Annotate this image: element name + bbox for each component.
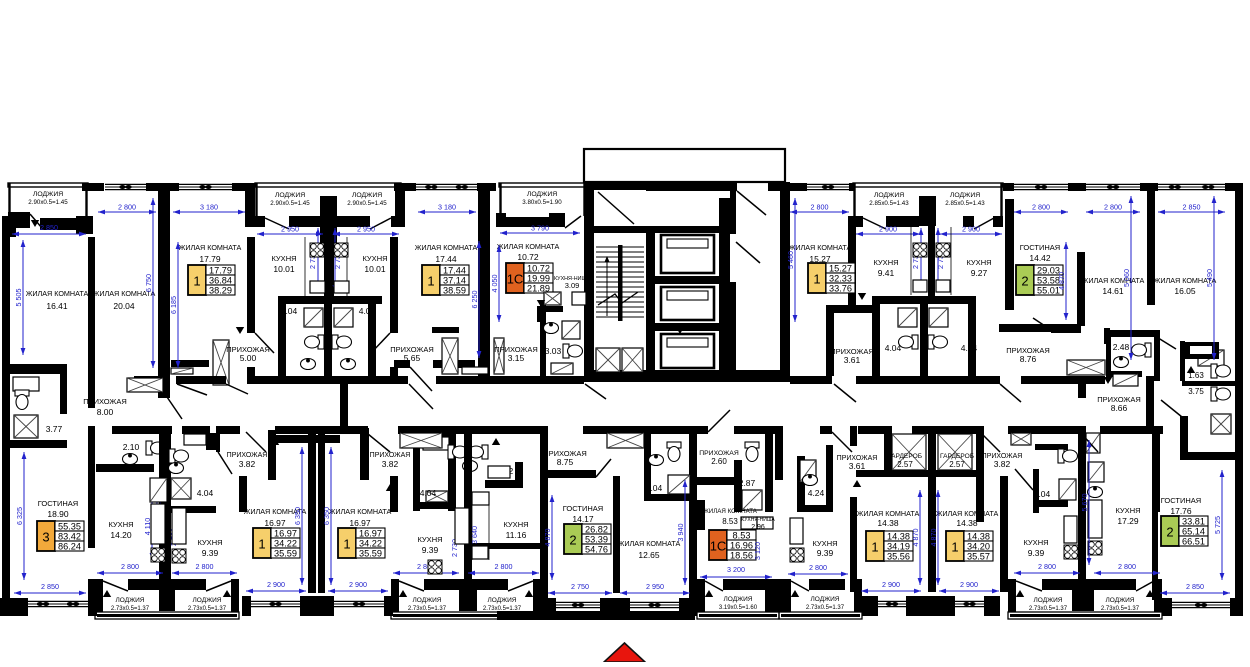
svg-text:2: 2 <box>1021 274 1028 289</box>
svg-text:2.73х0.5=1.37: 2.73х0.5=1.37 <box>1101 606 1140 612</box>
svg-text:14.20: 14.20 <box>110 530 132 540</box>
svg-text:14.61: 14.61 <box>1102 286 1124 296</box>
svg-text:2.73х0.5=1.37: 2.73х0.5=1.37 <box>111 606 150 612</box>
svg-text:КУХНЯ: КУХНЯ <box>197 538 222 547</box>
svg-text:10.72: 10.72 <box>527 263 550 273</box>
svg-text:8.00: 8.00 <box>97 407 114 417</box>
svg-text:3 940: 3 940 <box>676 524 685 542</box>
svg-text:КУХНЯ: КУХНЯ <box>362 254 387 263</box>
svg-text:2 850: 2 850 <box>1183 203 1201 212</box>
svg-text:54.76: 54.76 <box>585 544 608 554</box>
svg-text:2 900: 2 900 <box>960 580 978 589</box>
svg-text:ЛОДЖИЯ: ЛОДЖИЯ <box>811 596 840 603</box>
svg-text:1С: 1С <box>710 539 727 554</box>
svg-text:4 050: 4 050 <box>490 275 499 293</box>
svg-text:3.82: 3.82 <box>239 459 256 469</box>
svg-text:2 800: 2 800 <box>1118 562 1136 571</box>
svg-text:3 180: 3 180 <box>200 203 218 212</box>
svg-text:5 490: 5 490 <box>1205 269 1214 287</box>
svg-text:ГАРДЕРОБ: ГАРДЕРОБ <box>940 453 974 460</box>
svg-text:20.04: 20.04 <box>113 301 135 311</box>
svg-text:ЛОДЖИЯ: ЛОДЖИЯ <box>116 597 145 604</box>
svg-text:3.61: 3.61 <box>849 461 866 471</box>
svg-text:3.03: 3.03 <box>545 346 562 356</box>
svg-text:3.82: 3.82 <box>382 459 399 469</box>
svg-text:11.16: 11.16 <box>506 530 527 540</box>
svg-text:КУХНЯ: КУХНЯ <box>873 258 898 267</box>
svg-text:2 850: 2 850 <box>41 582 59 591</box>
svg-text:35.56: 35.56 <box>887 551 910 561</box>
svg-text:ЛОДЖИЯ: ЛОДЖИЯ <box>950 192 980 199</box>
svg-text:ЖИЛАЯ КОМНАТА: ЖИЛАЯ КОМНАТА <box>415 243 478 252</box>
svg-text:9.39: 9.39 <box>202 548 219 558</box>
svg-text:КУХНЯ: КУХНЯ <box>812 539 837 548</box>
svg-text:3 120: 3 120 <box>753 542 762 560</box>
svg-text:9.39: 9.39 <box>817 548 834 558</box>
svg-text:65.14: 65.14 <box>1182 526 1205 536</box>
svg-text:6 350: 6 350 <box>293 507 302 525</box>
svg-text:4.04: 4.04 <box>961 343 978 353</box>
svg-text:34.20: 34.20 <box>967 541 990 551</box>
svg-text:5 670: 5 670 <box>1080 494 1089 512</box>
svg-text:ЖИЛАЯ КОМНАТА: ЖИЛАЯ КОМНАТА <box>618 539 681 548</box>
svg-text:ГОСТИНАЯ: ГОСТИНАЯ <box>563 504 603 513</box>
svg-text:4 870: 4 870 <box>543 529 552 547</box>
svg-text:ЖИЛАЯ КОМНАТА: ЖИЛАЯ КОМНАТА <box>1082 276 1145 285</box>
svg-text:6 325: 6 325 <box>15 507 24 525</box>
svg-text:17.29: 17.29 <box>1117 516 1139 526</box>
svg-text:2 900: 2 900 <box>962 225 980 234</box>
svg-text:38.59: 38.59 <box>443 285 466 295</box>
svg-text:2 900: 2 900 <box>879 225 897 234</box>
svg-text:2 950: 2 950 <box>357 225 375 234</box>
svg-text:3.82: 3.82 <box>994 459 1011 469</box>
svg-text:3 790: 3 790 <box>531 224 549 233</box>
svg-text:5.00: 5.00 <box>240 353 257 363</box>
svg-text:КУХНЯ: КУХНЯ <box>271 254 296 263</box>
svg-text:18.56: 18.56 <box>730 550 753 560</box>
svg-text:2.85х0.5=1.43: 2.85х0.5=1.43 <box>945 200 985 207</box>
svg-text:2.60: 2.60 <box>711 457 727 466</box>
svg-text:15.27: 15.27 <box>829 263 852 273</box>
svg-text:2.90х0.5=1.45: 2.90х0.5=1.45 <box>28 199 68 206</box>
svg-text:2 950: 2 950 <box>281 225 299 234</box>
svg-text:3.75: 3.75 <box>1188 387 1204 396</box>
svg-text:2.87: 2.87 <box>739 478 756 488</box>
svg-text:4.24: 4.24 <box>808 488 825 498</box>
svg-text:ГОСТИНАЯ: ГОСТИНАЯ <box>38 499 78 508</box>
svg-text:66.51: 66.51 <box>1182 536 1205 546</box>
svg-text:2 800: 2 800 <box>495 562 513 571</box>
svg-text:3 180: 3 180 <box>438 203 456 212</box>
svg-text:14.38: 14.38 <box>887 531 910 541</box>
svg-text:1: 1 <box>258 537 265 552</box>
svg-text:16.97: 16.97 <box>359 528 382 538</box>
svg-text:35.59: 35.59 <box>359 548 382 558</box>
svg-text:5 505: 5 505 <box>14 289 23 307</box>
svg-text:14.17: 14.17 <box>572 514 594 524</box>
svg-text:83.42: 83.42 <box>58 531 81 541</box>
svg-text:2.57: 2.57 <box>949 460 965 469</box>
svg-text:4.04: 4.04 <box>420 488 437 498</box>
svg-text:6 250: 6 250 <box>470 291 479 309</box>
svg-text:4.04: 4.04 <box>197 488 214 498</box>
svg-text:4 870: 4 870 <box>929 529 938 547</box>
svg-text:8.53: 8.53 <box>733 530 751 540</box>
svg-text:5.65: 5.65 <box>404 353 421 363</box>
svg-text:2 800: 2 800 <box>121 562 139 571</box>
svg-text:2.73х0.5=1.37: 2.73х0.5=1.37 <box>408 606 447 612</box>
svg-text:4 870: 4 870 <box>1057 272 1066 290</box>
svg-text:ЖИЛАЯ КОМНАТА: ЖИЛАЯ КОМНАТА <box>329 507 392 516</box>
svg-text:4.04: 4.04 <box>359 306 376 316</box>
svg-text:53.39: 53.39 <box>585 534 608 544</box>
svg-text:2 850: 2 850 <box>40 223 58 232</box>
svg-text:2 950: 2 950 <box>646 582 664 591</box>
svg-text:8.53: 8.53 <box>722 517 738 526</box>
svg-text:2: 2 <box>1166 525 1173 540</box>
svg-text:КУХНЯ: КУХНЯ <box>503 520 528 529</box>
svg-text:1: 1 <box>343 537 350 552</box>
svg-text:9.27: 9.27 <box>971 268 988 278</box>
svg-text:ЖИЛАЯ КОМНАТА: ЖИЛАЯ КОМНАТА <box>936 509 999 518</box>
svg-text:3: 3 <box>42 530 49 545</box>
svg-text:КУХНЯ: КУХНЯ <box>1115 506 1140 515</box>
svg-text:ЛОДЖИЯ: ЛОДЖИЯ <box>33 191 63 198</box>
svg-text:1: 1 <box>871 540 878 555</box>
svg-text:ЛОДЖИЯ: ЛОДЖИЯ <box>413 597 442 604</box>
svg-text:16.05: 16.05 <box>1174 286 1196 296</box>
svg-text:ПРИХОЖАЯ: ПРИХОЖАЯ <box>83 397 127 406</box>
svg-text:17.76: 17.76 <box>1170 506 1192 516</box>
svg-text:ГОСТИНАЯ: ГОСТИНАЯ <box>1161 496 1201 505</box>
svg-text:9.39: 9.39 <box>422 545 439 555</box>
svg-text:6 350: 6 350 <box>322 507 331 525</box>
svg-text:34.22: 34.22 <box>274 538 297 548</box>
svg-text:ЛОДЖИЯ: ЛОДЖИЯ <box>724 596 753 603</box>
svg-text:ЖИЛАЯ КОМНАТА: ЖИЛАЯ КОМНАТА <box>179 243 242 252</box>
svg-text:КУХНЯ: КУХНЯ <box>108 520 133 529</box>
svg-text:1: 1 <box>427 274 434 289</box>
svg-text:17.79: 17.79 <box>209 265 232 275</box>
svg-text:3.15: 3.15 <box>508 353 525 363</box>
svg-text:ЛОДЖИЯ: ЛОДЖИЯ <box>1106 597 1135 604</box>
svg-text:1.63: 1.63 <box>1188 371 1204 380</box>
svg-text:3 200: 3 200 <box>727 565 745 574</box>
svg-text:2 800: 2 800 <box>809 563 827 572</box>
svg-text:5 060: 5 060 <box>1122 269 1131 287</box>
svg-text:ЛОДЖИЯ: ЛОДЖИЯ <box>352 192 382 199</box>
svg-text:2 800: 2 800 <box>118 203 136 212</box>
svg-text:5 725: 5 725 <box>1213 516 1222 534</box>
svg-text:4.04: 4.04 <box>1034 489 1051 499</box>
svg-text:ЛОДЖИЯ: ЛОДЖИЯ <box>1034 597 1063 604</box>
svg-text:ЛОДЖИЯ: ЛОДЖИЯ <box>488 597 517 604</box>
svg-text:34.22: 34.22 <box>359 538 382 548</box>
svg-text:86.24: 86.24 <box>58 541 81 551</box>
svg-text:2.73х0.5=1.37: 2.73х0.5=1.37 <box>1029 606 1068 612</box>
svg-text:2 800: 2 800 <box>196 562 214 571</box>
svg-text:1: 1 <box>951 540 958 555</box>
svg-text:1: 1 <box>813 272 820 287</box>
svg-text:3.77: 3.77 <box>46 424 63 434</box>
svg-text:37.14: 37.14 <box>443 275 466 285</box>
svg-text:КУХНЯ: КУХНЯ <box>966 258 991 267</box>
svg-text:17.79: 17.79 <box>199 254 221 264</box>
svg-text:35.59: 35.59 <box>274 548 297 558</box>
svg-text:12.65: 12.65 <box>638 550 660 560</box>
svg-text:2 800: 2 800 <box>1104 203 1122 212</box>
svg-text:6 185: 6 185 <box>169 296 178 314</box>
svg-text:2 800: 2 800 <box>1032 203 1050 212</box>
svg-text:ЛОДЖИЯ: ЛОДЖИЯ <box>193 597 222 604</box>
svg-text:ЛОДЖИЯ: ЛОДЖИЯ <box>527 191 557 198</box>
svg-text:2 900: 2 900 <box>882 580 900 589</box>
svg-text:ГОСТИНАЯ: ГОСТИНАЯ <box>1020 243 1060 252</box>
svg-text:18.90: 18.90 <box>47 509 69 519</box>
svg-text:14.38: 14.38 <box>877 518 899 528</box>
svg-text:1С: 1С <box>507 272 524 287</box>
svg-text:14.42: 14.42 <box>1029 253 1051 263</box>
svg-text:1: 1 <box>193 274 200 289</box>
svg-text:2: 2 <box>569 533 576 548</box>
svg-text:2 850: 2 850 <box>1186 582 1204 591</box>
svg-text:ЖИЛАЯ КОМНАТА: ЖИЛАЯ КОМНАТА <box>789 243 852 252</box>
svg-text:2 800: 2 800 <box>811 203 829 212</box>
svg-text:2 900: 2 900 <box>267 580 285 589</box>
svg-text:2.10: 2.10 <box>123 442 140 452</box>
svg-text:8.75: 8.75 <box>557 457 574 467</box>
svg-text:9.39: 9.39 <box>1028 548 1045 558</box>
svg-text:2.73х0.5=1.37: 2.73х0.5=1.37 <box>188 606 227 612</box>
svg-text:2 800: 2 800 <box>1038 562 1056 571</box>
svg-text:2 900: 2 900 <box>349 580 367 589</box>
svg-text:3.19х0.5=1.60: 3.19х0.5=1.60 <box>719 605 758 611</box>
svg-text:34.19: 34.19 <box>887 541 910 551</box>
svg-text:4.04: 4.04 <box>646 483 663 493</box>
svg-text:2 750: 2 750 <box>571 582 589 591</box>
svg-text:ГАРДЕРОБ: ГАРДЕРОБ <box>888 453 922 460</box>
svg-text:2.48: 2.48 <box>1113 342 1130 352</box>
svg-text:3.09: 3.09 <box>565 281 580 290</box>
svg-text:17.44: 17.44 <box>443 265 466 275</box>
svg-text:16.97: 16.97 <box>274 528 297 538</box>
svg-text:ЛОДЖИЯ: ЛОДЖИЯ <box>275 192 305 199</box>
svg-text:14.38: 14.38 <box>956 518 978 528</box>
svg-text:ПРИХОЖАЯ: ПРИХОЖАЯ <box>699 450 739 457</box>
svg-text:3.61: 3.61 <box>844 355 861 365</box>
svg-text:16.96: 16.96 <box>730 540 753 550</box>
svg-text:ЖИЛАЯ КОМНАТА: ЖИЛАЯ КОМНАТА <box>857 509 920 518</box>
svg-text:КУХНЯ: КУХНЯ <box>1023 538 1048 547</box>
svg-text:10.01: 10.01 <box>364 264 386 274</box>
svg-text:2.90х0.5=1.45: 2.90х0.5=1.45 <box>347 200 387 207</box>
svg-text:КУХНЯ-НИША: КУХНЯ-НИША <box>741 517 775 523</box>
svg-text:8.76: 8.76 <box>1020 354 1037 364</box>
svg-text:ЛОДЖИЯ: ЛОДЖИЯ <box>874 192 904 199</box>
svg-text:9.41: 9.41 <box>878 268 895 278</box>
svg-text:2.57: 2.57 <box>897 460 913 469</box>
svg-text:4.04: 4.04 <box>281 306 298 316</box>
svg-text:4.04: 4.04 <box>885 343 902 353</box>
svg-text:16.97: 16.97 <box>264 518 286 528</box>
svg-text:14.38: 14.38 <box>967 531 990 541</box>
svg-text:33.81: 33.81 <box>1182 516 1205 526</box>
svg-text:8.66: 8.66 <box>1111 403 1128 413</box>
svg-text:2.90х0.5=1.45: 2.90х0.5=1.45 <box>270 200 310 207</box>
svg-text:ЖИЛАЯ КОМНАТА: ЖИЛАЯ КОМНАТА <box>703 508 758 515</box>
svg-text:3.80х0.5=1.90: 3.80х0.5=1.90 <box>522 199 562 206</box>
svg-text:33.76: 33.76 <box>829 283 852 293</box>
svg-text:5 460: 5 460 <box>786 251 795 269</box>
svg-text:2.85х0.5=1.43: 2.85х0.5=1.43 <box>869 200 909 207</box>
svg-text:17.44: 17.44 <box>435 254 457 264</box>
svg-text:4 870: 4 870 <box>911 529 920 547</box>
svg-text:10.01: 10.01 <box>273 264 295 274</box>
svg-text:ПРИХОЖАЯ: ПРИХОЖАЯ <box>227 452 268 459</box>
svg-text:КУХНЯ: КУХНЯ <box>417 535 442 544</box>
svg-text:32.33: 32.33 <box>829 273 852 283</box>
svg-text:26.82: 26.82 <box>585 524 608 534</box>
svg-text:36.84: 36.84 <box>209 275 232 285</box>
svg-text:35.57: 35.57 <box>967 551 990 561</box>
svg-text:ЖИЛАЯ КОМНАТА: ЖИЛАЯ КОМНАТА <box>497 242 560 251</box>
svg-text:10.72: 10.72 <box>517 252 539 262</box>
svg-text:19.99: 19.99 <box>527 273 550 283</box>
svg-text:16.97: 16.97 <box>349 518 371 528</box>
svg-text:ЖИЛАЯ КОМНАТА: ЖИЛАЯ КОМНАТА <box>26 289 89 298</box>
svg-text:6 750: 6 750 <box>144 274 153 292</box>
svg-text:3 640: 3 640 <box>470 526 479 544</box>
svg-text:38.29: 38.29 <box>209 285 232 295</box>
svg-text:16.41: 16.41 <box>46 301 68 311</box>
svg-text:2.73х0.5=1.37: 2.73х0.5=1.37 <box>806 605 845 611</box>
svg-text:55.35: 55.35 <box>58 521 81 531</box>
svg-text:ПРИХОЖАЯ: ПРИХОЖАЯ <box>370 452 411 459</box>
